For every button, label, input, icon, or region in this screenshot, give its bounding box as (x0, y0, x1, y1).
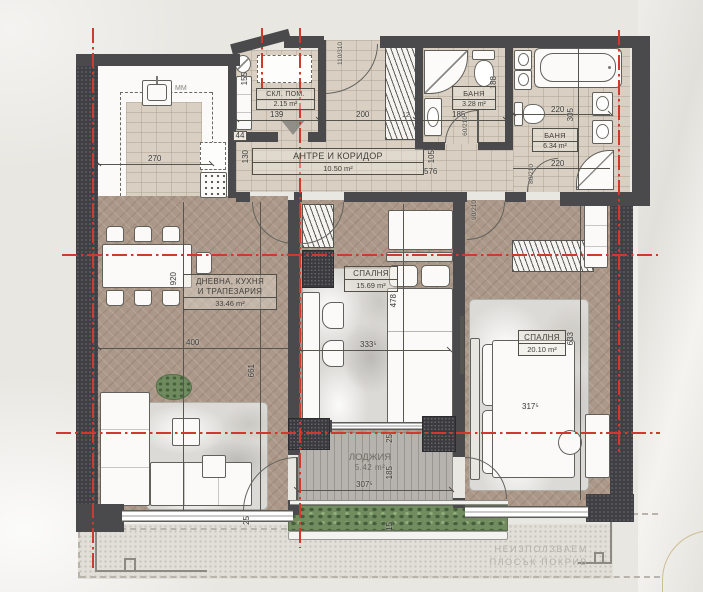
exterior-wall-right-bedroom2 (610, 202, 633, 518)
dim-bath-large-width-top: 220 (551, 106, 564, 114)
dim-loggia-offset-top: 25 (386, 434, 394, 443)
dining-chair (162, 290, 180, 306)
room-label-living: ДНЕВНА, КУХНЯ И ТРАПЕЗАРИЯ 33.46 m² (183, 274, 277, 310)
room-name: АНТРЕ И КОРИДОР (253, 149, 423, 162)
room-label-bedroom2: СПАЛНЯ 20.10 m² (518, 330, 566, 356)
dim-kitchen-width: 270 (148, 155, 161, 163)
bedroom1-dresser (388, 210, 453, 250)
sofa-section-bottom (150, 462, 252, 506)
room-label-bath-small: БАНЯ 3.28 m² (452, 86, 496, 110)
wall-hall-bath-small (415, 40, 423, 144)
room-area: 20.10 m² (519, 343, 565, 355)
roof-note-line1: НЕИЗПОЛЗВАЕМ (472, 543, 588, 556)
hall-closet (385, 44, 416, 140)
dim-hall-right-depth: 105 (428, 150, 436, 163)
main-wall-seg4 (505, 192, 526, 202)
dim-living-length: 661 (248, 364, 256, 377)
roof-dashed-line-3 (80, 576, 660, 578)
room-name: СКЛ. ПОМ. (257, 89, 314, 99)
room-label-bedroom1: СПАЛНЯ 15.69 m² (344, 266, 398, 292)
main-wall-seg1 (236, 192, 250, 202)
axis-red-v2 (261, 28, 263, 88)
bedroom2-vanity (585, 414, 610, 478)
floor-plan-canvas: НЕИЗПОЛЗВАЕМ ПЛОСЪК ПОКРИВ ММ 44 СКЛ. ПО… (0, 0, 703, 592)
door-size-bath-large: 80/210 (529, 164, 536, 184)
desk-chair (322, 340, 344, 367)
room-name: БАНЯ (453, 87, 495, 99)
dim-hall-width: 200 (356, 111, 369, 119)
vanity-basin (427, 107, 439, 127)
room-name: СПАЛНЯ (519, 331, 565, 343)
exterior-wall-left (76, 54, 98, 532)
door-size-bedroom2: 90/210 (472, 200, 479, 220)
kitchen-sink-basin (147, 84, 167, 101)
axis-red-v1 (92, 28, 94, 572)
bath-small-door-leaf (477, 110, 479, 143)
dim-wall-thickness: 12 (402, 112, 410, 119)
room-label-hall: АНТРЕ И КОРИДОР 10.50 m² (252, 148, 424, 175)
dim-window-offset: 25 (243, 516, 251, 525)
dimline-living-661 (260, 202, 261, 512)
shaft-loggia-right (422, 416, 456, 452)
dimline-bath2-top (513, 114, 610, 115)
main-wall-seg5 (560, 192, 650, 206)
corner-block-right (586, 494, 634, 522)
bedroom2-wardrobe (512, 240, 594, 272)
parapet-left-notch (124, 558, 136, 570)
parapet-left-h (95, 570, 207, 572)
room-label-bath-large: БАНЯ 6.34 m² (532, 128, 578, 152)
bedroom1-loggia-glazing (332, 422, 424, 430)
dimline-bath2-305 (578, 48, 579, 190)
dim-storage-depth: 155 (241, 72, 249, 85)
wall-storage-right (318, 40, 326, 142)
dim-bath-large-width-bottom: 220 (551, 160, 564, 168)
axis-red-v4 (618, 30, 620, 452)
dim-hall-length: 576 (424, 168, 437, 176)
side-table (202, 455, 226, 478)
room-area: 33.46 m² (184, 297, 276, 309)
dim-hall-left-depth: 130 (242, 150, 250, 163)
dim-loggia-width: 307⁵ (356, 481, 373, 489)
bedroom2-shelves (584, 204, 608, 268)
wall-top-kitchen (76, 54, 240, 66)
dimline-bedroom1-478 (403, 204, 404, 428)
parapet-right-notch (594, 552, 604, 562)
sofa-section-left (100, 392, 150, 506)
vanity-stool (558, 430, 582, 455)
dimline-living-400 (98, 348, 293, 349)
kitchen-oven (200, 172, 227, 198)
room-area: 3.28 m² (453, 99, 495, 109)
room-name: БАНЯ (533, 129, 577, 141)
shaft-loggia-left (288, 418, 330, 450)
plant (156, 374, 192, 400)
dim-bedroom2-width: 317⁵ (522, 403, 539, 411)
room-name: ЛОДЖИЯ (330, 452, 410, 463)
entrance-arrow (281, 120, 305, 135)
appliance-label: ММ (175, 85, 187, 92)
dim-bedroom2-length: 633 (567, 332, 575, 345)
dim-loggia-offset-bottom: 15 (386, 522, 394, 531)
dining-chair (134, 226, 152, 242)
planter-sill (288, 531, 508, 540)
dim-bedroom1-width: 333⁵ (360, 341, 377, 349)
wall-storage-bottom-r (308, 132, 318, 142)
room-area: 5.42 m² (330, 463, 410, 472)
axis-red-h2 (56, 432, 660, 434)
dining-table (102, 244, 192, 288)
room-name-line2: И ТРАПЕЗАРИЯ (184, 287, 276, 297)
roof-note-line2: ПЛОСЪК ПОКРИВ (472, 556, 588, 569)
main-wall-seg3 (344, 192, 467, 202)
dim-bath-large-depth: 305 (567, 108, 575, 121)
wall-right-baths (632, 36, 650, 196)
dimline-bedroom1-333 (300, 350, 450, 351)
door-size-bath-small: 60/210 (463, 116, 470, 136)
bedroom2-window (465, 506, 588, 518)
kitchen-tap (156, 76, 158, 84)
wall-bath-small-bottom-r (478, 142, 513, 150)
roof-dashed-line-left (78, 532, 80, 578)
room-name: СПАЛНЯ (345, 267, 397, 279)
parapet-right-v (610, 522, 612, 564)
dimline-bedroom2-633 (580, 204, 581, 500)
shaft-block (302, 250, 334, 288)
room-area: 10.50 m² (253, 162, 423, 174)
room-label-storage: СКЛ. ПОМ. 2.15 m² (256, 88, 315, 110)
bed1-pillow (421, 265, 450, 287)
sink-2-basin (596, 124, 609, 139)
dimline-living-920 (183, 202, 184, 512)
washer-drum (518, 53, 529, 66)
dining-chair (106, 290, 124, 306)
dimline-kitchen (98, 164, 212, 165)
loggia-railing (290, 500, 508, 505)
sink-1-basin (596, 96, 609, 111)
room-area: 2.15 m² (257, 99, 314, 109)
dim-bedroom1-length: 478 (390, 294, 398, 307)
room-label-loggia: ЛОДЖИЯ 5.42 m² (330, 452, 410, 472)
roof-note: НЕИЗПОЛЗВАЕМ ПЛОСЪК ПОКРИВ (472, 543, 588, 568)
dim-living-total: 920 (170, 272, 178, 285)
counter-dashed-left (120, 92, 121, 196)
wall-kitchen-divider (228, 54, 236, 198)
bathtub-drain (608, 66, 611, 69)
dryer-drum (518, 73, 529, 86)
toilet-tank (472, 50, 495, 60)
dim-living-width: 400 (186, 339, 199, 347)
bed1-body (387, 288, 453, 426)
corner-block-left (76, 504, 124, 532)
storage-shelf (257, 55, 312, 83)
dining-chair (162, 226, 180, 242)
dim-storage-width: 139 (270, 111, 283, 119)
room-area: 6.34 m² (533, 141, 577, 151)
wall-between-baths (505, 40, 513, 142)
tv-on-wall (460, 316, 464, 374)
room-name-line1: ДНЕВНА, КУХНЯ (184, 275, 276, 287)
parapet-left-v (95, 532, 97, 572)
living-window (122, 510, 293, 522)
kitchen-tile-area (126, 102, 202, 198)
dining-chair (134, 290, 152, 306)
axis-red-h1 (62, 254, 658, 256)
counter-dashed-right (212, 92, 213, 144)
door-size-entrance: 110/310 (338, 42, 345, 65)
dining-chair (106, 226, 124, 242)
desk-chair (322, 302, 344, 329)
room-area: 15.69 m² (345, 279, 397, 291)
dimline-loggia-307 (296, 490, 452, 491)
bedroom1-desk (302, 292, 320, 424)
cabinet-dim: 44 (233, 131, 247, 141)
